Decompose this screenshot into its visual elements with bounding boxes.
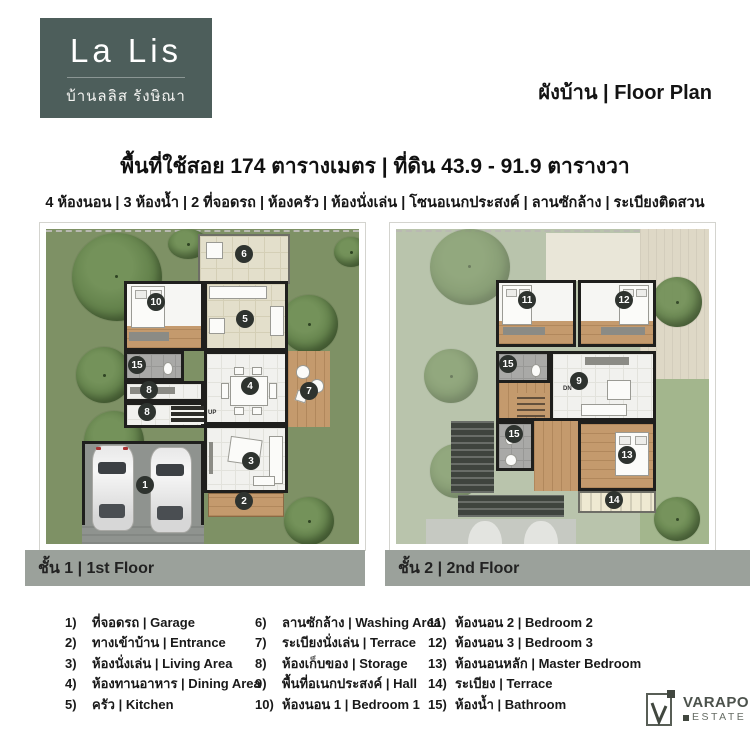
legend-item-label: พื้นที่อเนกประสงค์ | Hall xyxy=(282,673,417,694)
room-badge: 15 xyxy=(505,425,523,443)
room-badge: 13 xyxy=(618,446,636,464)
room-badge: 15 xyxy=(499,355,517,373)
fridge-icon xyxy=(270,306,284,336)
pillow-icon xyxy=(635,436,647,445)
legend-item-number: 12) xyxy=(428,635,455,650)
legend-item: 12)ห้องนอน 3 | Bedroom 3 xyxy=(428,633,641,654)
legend-item-label: ที่จอดรถ | Garage xyxy=(92,612,195,633)
legend-item: 8)ห้องเก็บของ | Storage xyxy=(255,653,441,674)
tv-cabinet-icon xyxy=(209,442,213,474)
legend-column-3: 11)ห้องนอน 2 | Bedroom 212)ห้องนอน 3 | B… xyxy=(428,612,641,715)
pillow-icon xyxy=(619,436,631,445)
second-floor-label-bar: ชั้น 2 | 2nd Floor xyxy=(385,550,750,586)
master-bedroom-room xyxy=(578,421,656,491)
legend-item-label: ครัว | Kitchen xyxy=(92,694,174,715)
room-badge: 6 xyxy=(235,245,253,263)
legend-item-number: 6) xyxy=(255,615,282,630)
legend-item: 4)ห้องทานอาหาร | Dining Area xyxy=(65,674,261,695)
cabinet-icon xyxy=(585,357,629,365)
estate-square-icon xyxy=(683,715,689,721)
wardrobe-icon xyxy=(601,327,645,335)
garage-roof xyxy=(458,495,564,517)
tree-icon xyxy=(334,237,365,267)
legend-item-number: 3) xyxy=(65,656,92,671)
room-badge: 3 xyxy=(242,452,260,470)
legend-item-label: ระเบียง | Terrace xyxy=(455,673,553,694)
varapol-mark-icon xyxy=(645,689,679,729)
tree-icon xyxy=(652,277,702,327)
legend-item: 14)ระเบียง | Terrace xyxy=(428,674,641,695)
pillow-icon xyxy=(636,289,647,297)
wardrobe-icon xyxy=(503,327,545,335)
legend-item-number: 10) xyxy=(255,697,282,712)
kitchen-counter-icon xyxy=(209,286,267,299)
tree-icon xyxy=(424,349,478,403)
stair-direction-label: DN xyxy=(563,386,572,392)
sofa-icon xyxy=(581,404,627,416)
room-badge: 10 xyxy=(147,293,165,311)
legend-item-label: ห้องนอน 3 | Bedroom 3 xyxy=(455,632,593,653)
chair-icon xyxy=(269,383,277,399)
roof-section xyxy=(451,421,494,493)
room-badge: 15 xyxy=(128,356,146,374)
legend-item-label: ระเบียงนั่งเล่น | Terrace xyxy=(282,632,416,653)
bedroom3-room xyxy=(578,280,656,347)
legend-item-number: 7) xyxy=(255,635,282,650)
logo-subtitle: บ้านลลิส รังษิณา xyxy=(40,84,212,108)
varapol-estate-logo: VARAPOL ESTATE xyxy=(645,686,745,732)
brand-name: VARAPOL xyxy=(683,695,750,710)
faded-washing-area xyxy=(546,233,641,281)
legend-item: 5)ครัว | Kitchen xyxy=(65,694,261,715)
legend-item-label: ห้องน้ำ | Bathroom xyxy=(455,694,566,715)
second-floor-label: ชั้น 2 | 2nd Floor xyxy=(385,556,519,581)
room-badge: 7 xyxy=(300,382,318,400)
room-badge: 4 xyxy=(241,377,259,395)
legend-item: 10)ห้องนอน 1 | Bedroom 1 xyxy=(255,694,441,715)
legend-item-number: 9) xyxy=(255,676,282,691)
tree-icon xyxy=(654,497,700,541)
legend-item-label: ห้องนอน 1 | Bedroom 1 xyxy=(282,694,420,715)
tree-icon xyxy=(280,295,338,353)
room-badge: 12 xyxy=(615,291,633,309)
legend-item: 15)ห้องน้ำ | Bathroom xyxy=(428,694,641,715)
chair-icon xyxy=(234,407,244,415)
car-icon xyxy=(150,447,192,533)
legend-item-number: 8) xyxy=(255,656,282,671)
features-subtitle: 4 ห้องนอน | 3 ห้องน้ำ | 2 ที่จอดรถ | ห้อ… xyxy=(0,191,750,214)
legend-item-number: 5) xyxy=(65,697,92,712)
legend-column-2: 6)ลานซักล้าง | Washing Area7)ระเบียงนั่ง… xyxy=(255,612,441,715)
washing-machine-icon xyxy=(206,242,223,259)
legend-item-label: ห้องนอน 2 | Bedroom 2 xyxy=(455,612,593,633)
legend-item: 2)ทางเข้าบ้าน | Entrance xyxy=(65,633,261,654)
storage-stair-room xyxy=(124,402,204,428)
varapol-text: VARAPOL ESTATE xyxy=(683,695,750,723)
second-floor-plan: DN 1112159151314 xyxy=(390,223,715,550)
room-badge: 2 xyxy=(235,492,253,510)
legend-item-number: 2) xyxy=(65,635,92,650)
chair-icon xyxy=(234,367,244,375)
pillow-icon xyxy=(135,290,147,299)
legend-item: 13)ห้องนอนหลัก | Master Bedroom xyxy=(428,653,641,674)
taillight-icon xyxy=(96,447,101,450)
kitchen-island-icon xyxy=(209,318,225,334)
legend-item-number: 1) xyxy=(65,615,92,630)
room-badge: 1 xyxy=(136,476,154,494)
first-floor-plan: UP xyxy=(40,223,365,550)
legend-column-1: 1)ที่จอดรถ | Garage2)ทางเข้าบ้าน | Entra… xyxy=(65,612,261,715)
legend-item-number: 14) xyxy=(428,676,455,691)
chair-icon xyxy=(221,383,229,399)
page-label: ผังบ้าน | Floor Plan xyxy=(538,76,712,108)
toilet-icon xyxy=(163,362,173,375)
room-badge: 14 xyxy=(605,491,623,509)
corridor xyxy=(534,421,578,491)
chair-icon xyxy=(252,367,262,375)
stair-corridor xyxy=(496,383,556,421)
legend-item-number: 4) xyxy=(65,676,92,691)
toilet-icon xyxy=(531,364,541,377)
staircase xyxy=(171,406,204,424)
legend-item-label: ลานซักล้าง | Washing Area xyxy=(282,612,441,633)
first-floor-label-bar: ชั้น 1 | 1st Floor xyxy=(25,550,365,586)
legend-item: 7)ระเบียงนั่งเล่น | Terrace xyxy=(255,633,441,654)
chair-icon xyxy=(252,407,262,415)
first-floor-label: ชั้น 1 | 1st Floor xyxy=(25,556,154,581)
legend-item-label: ทางเข้าบ้าน | Entrance xyxy=(92,632,226,653)
tree-icon xyxy=(284,497,334,545)
legend-item-label: ห้องทานอาหาร | Dining Area xyxy=(92,673,261,694)
legend-item-number: 13) xyxy=(428,656,455,671)
legend-item: 11)ห้องนอน 2 | Bedroom 2 xyxy=(428,612,641,633)
table-icon xyxy=(607,380,631,400)
storage-room xyxy=(124,381,204,402)
outdoor-chair-icon xyxy=(296,365,310,379)
floor-plan-flyer: La Lis บ้านลลิส รังษิณา ผังบ้าน | Floor … xyxy=(0,0,750,750)
logo-divider xyxy=(67,77,185,78)
room-badge: 11 xyxy=(518,291,536,309)
legend-item: 9)พื้นที่อเนกประสงค์ | Hall xyxy=(255,674,441,695)
brand-logo-box: La Lis บ้านลลิส รังษิณา xyxy=(40,18,212,118)
car-icon xyxy=(92,445,134,531)
property-boundary-line xyxy=(46,230,359,232)
bedroom2-room xyxy=(496,280,576,347)
staircase xyxy=(517,393,545,417)
sofa-icon xyxy=(253,476,275,486)
area-title: พื้นที่ใช้สอย 174 ตารางเมตร | ที่ดิน 43.… xyxy=(0,150,750,183)
legend-item-number: 11) xyxy=(428,615,455,630)
pillow-icon xyxy=(506,289,517,297)
legend-item-label: ห้องนั่งเล่น | Living Area xyxy=(92,653,232,674)
legend-item-label: ห้องนอนหลัก | Master Bedroom xyxy=(455,653,641,674)
legend-item-label: ห้องเก็บของ | Storage xyxy=(282,653,408,674)
legend-item-number: 15) xyxy=(428,697,455,712)
stair-direction-label: UP xyxy=(208,410,216,416)
legend-item: 1)ที่จอดรถ | Garage xyxy=(65,612,261,633)
room-badge: 9 xyxy=(570,372,588,390)
room-badge: 8 xyxy=(138,403,156,421)
taillight-icon xyxy=(123,447,128,450)
room-badge: 8 xyxy=(140,381,158,399)
legend-item: 6)ลานซักล้าง | Washing Area xyxy=(255,612,441,633)
bedroom1-room xyxy=(124,281,204,351)
dresser-icon xyxy=(129,332,169,341)
room-badge: 5 xyxy=(236,310,254,328)
sink-icon xyxy=(505,454,517,466)
logo-title: La Lis xyxy=(40,32,212,70)
brand-type: ESTATE xyxy=(692,712,746,723)
legend-item: 3)ห้องนั่งเล่น | Living Area xyxy=(65,653,261,674)
